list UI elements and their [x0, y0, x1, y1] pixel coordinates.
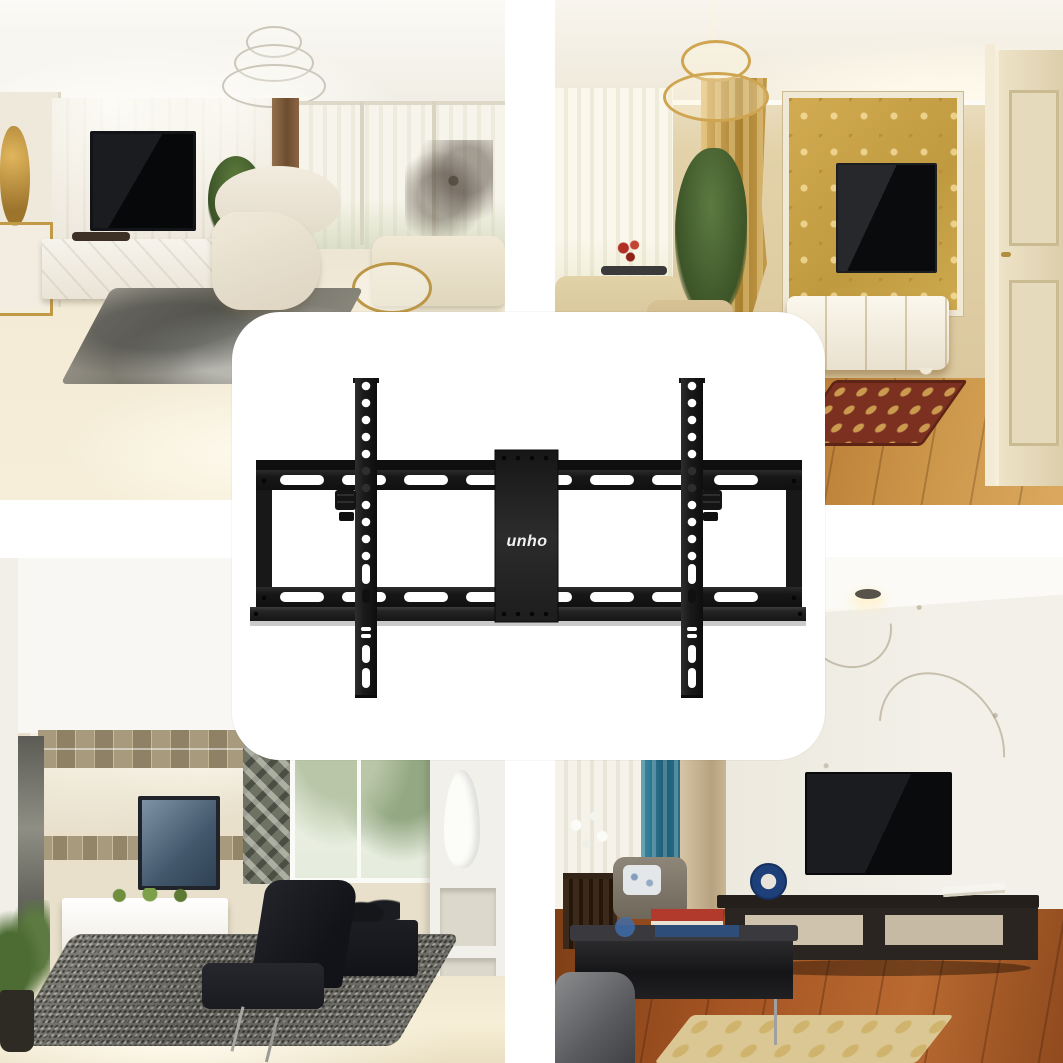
cabinet-tray-decor	[72, 232, 130, 241]
black-vases	[348, 894, 400, 922]
round-gold-coffee-table	[352, 262, 432, 314]
brand-logo-text: unho	[506, 533, 547, 550]
tilt-knob-left	[335, 490, 356, 510]
tilt-tab-right	[703, 512, 718, 521]
white-blossoms	[563, 803, 615, 877]
door-panel	[1009, 90, 1059, 246]
wall-mounted-tv	[805, 772, 952, 875]
chandelier-stem	[712, 0, 715, 42]
blue-book	[655, 925, 739, 937]
white-lounge-chair-seat	[212, 212, 320, 310]
dry-branch-decor	[405, 140, 493, 242]
window-mullion	[360, 101, 364, 245]
tv-wall-mount-bracket: unho	[232, 312, 825, 760]
door-frame	[985, 44, 995, 486]
door-handle	[1001, 252, 1011, 257]
green-plants-on-cabinet	[104, 888, 206, 903]
door-panel	[1009, 280, 1059, 446]
red-flowers	[615, 236, 643, 266]
product-collage-page: { "page": { "background_color": "#ffffff…	[0, 0, 1063, 1063]
vesa-arm-right	[679, 378, 722, 698]
vesa-arm-left	[335, 378, 379, 698]
blue-decorative-plate	[750, 863, 787, 900]
tilt-knob-right	[701, 490, 722, 510]
grey-sofa-corner	[555, 972, 635, 1063]
center-plate: unho	[495, 450, 558, 622]
black-lounge-chair-seat	[202, 963, 324, 1009]
recessed-light	[855, 589, 881, 599]
product-card: unho	[232, 312, 825, 760]
cabinet-drawer-panel	[885, 915, 1003, 945]
glass-side-table	[601, 266, 667, 275]
wall-mounted-tv	[90, 131, 196, 231]
tilt-tab-left	[339, 512, 354, 521]
plant-pot	[0, 990, 34, 1052]
blue-glass	[615, 917, 635, 937]
wall-mounted-tv	[138, 796, 220, 890]
red-book	[651, 909, 723, 925]
floral-pillow	[623, 865, 661, 895]
wall-mounted-tv	[836, 163, 937, 273]
chandelier-ring	[663, 72, 769, 122]
potted-plant	[675, 148, 747, 316]
gold-chandelier	[653, 0, 775, 140]
gold-sculpture	[0, 126, 30, 226]
